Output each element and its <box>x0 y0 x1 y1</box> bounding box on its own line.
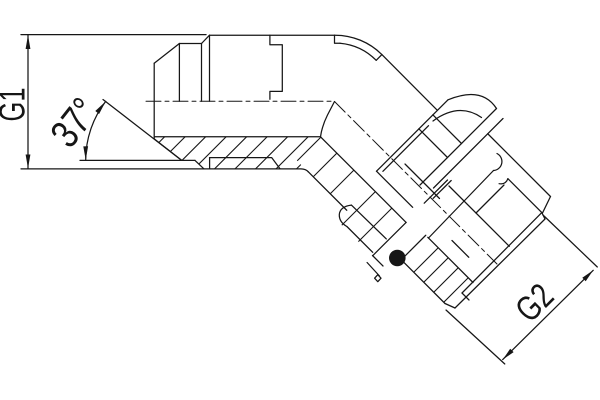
svg-text:G1: G1 <box>0 87 33 121</box>
